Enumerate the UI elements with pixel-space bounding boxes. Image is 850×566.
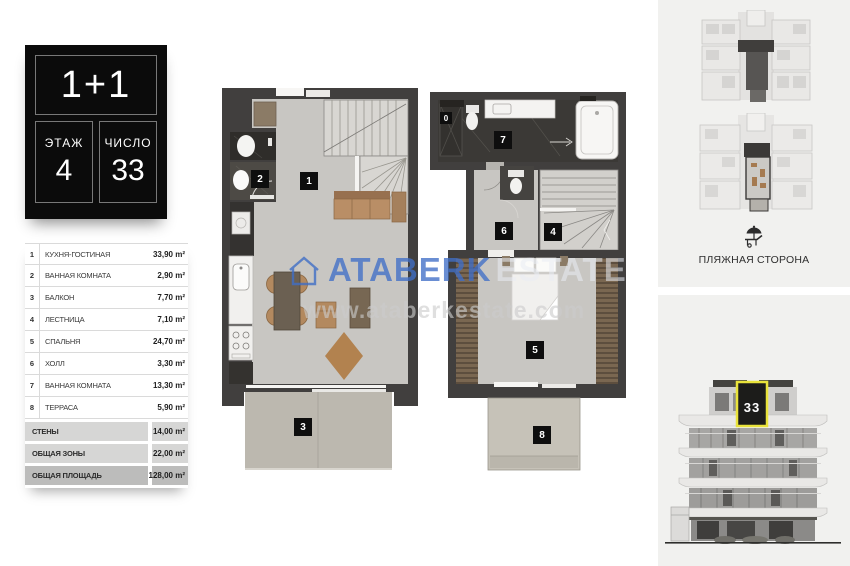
staircase-upper: [540, 170, 618, 250]
closet: [254, 102, 276, 126]
side-table: [316, 302, 336, 328]
summary-row: ОБЩАЯ ПЛОЩАДЬ128,00 m²: [25, 466, 188, 485]
toilet: [233, 170, 249, 190]
room-number: 7: [25, 375, 40, 396]
area-row: 2ВАННАЯ КОМНАТА2,90 m²: [25, 265, 188, 287]
room-number: 6: [25, 353, 40, 374]
room-number: 1: [25, 244, 40, 264]
highlighted-unit-number: 33: [744, 400, 760, 415]
building-elevation: 33: [663, 300, 845, 562]
summary-name: ОБЩАЯ ЗОНЫ: [25, 444, 148, 463]
summary-area: 14,00 m²: [152, 422, 188, 441]
room-number: 8: [25, 397, 40, 418]
unit-number-value: 33: [111, 154, 144, 188]
area-row: 1КУХНЯ-ГОСТИНАЯ33,90 m²: [25, 243, 188, 265]
floor-label: ЭТАЖ: [45, 136, 84, 150]
area-row: 3БАЛКОН7,70 m²: [25, 287, 188, 309]
floor-plan-upper: [430, 92, 626, 478]
floor-plan-lower: [222, 88, 418, 478]
unit-number-label: ЧИСЛО: [104, 136, 151, 150]
beach-icon: [741, 224, 767, 251]
floor-value: 4: [56, 154, 73, 188]
room-name: БАЛКОН: [40, 293, 157, 302]
room-name: КУХНЯ-ГОСТИНАЯ: [40, 250, 153, 259]
elevation-floors: [679, 428, 827, 517]
room-area: 7,10 m²: [157, 315, 188, 324]
sofa: [334, 191, 406, 222]
unit-number-box: ЧИСЛО 33: [99, 121, 157, 203]
bathroom-upper: [438, 96, 618, 162]
room-name: ВАННАЯ КОМНАТА: [40, 381, 153, 390]
room-number: 5: [25, 331, 40, 352]
toilet-upper: [466, 105, 479, 113]
beach-side-label: ПЛЯЖНАЯ СТОРОНА: [658, 254, 850, 266]
room-name: ХОЛЛ: [40, 359, 157, 368]
washer: [232, 212, 250, 234]
room-area: 3,30 m²: [157, 359, 188, 368]
summary-row: ОБЩАЯ ЗОНЫ22,00 m²: [25, 444, 188, 463]
area-row: 5СПАЛЬНЯ24,70 m²: [25, 331, 188, 353]
building-elevation-panel: 33: [658, 295, 850, 566]
area-table: 1КУХНЯ-ГОСТИНАЯ33,90 m²2ВАННАЯ КОМНАТА2,…: [25, 243, 188, 488]
building-plan-overview-upper: [700, 10, 812, 104]
summary-name: ОБЩАЯ ПЛОЩАДЬ: [25, 466, 148, 485]
balcony: [222, 392, 418, 470]
room-name: СПАЛЬНЯ: [40, 337, 153, 346]
area-table-summary: СТЕНЫ14,00 m²ОБЩАЯ ЗОНЫ22,00 m²ОБЩАЯ ПЛО…: [25, 422, 188, 485]
room-area: 2,90 m²: [157, 271, 188, 280]
brochure-page: 1+1 ЭТАЖ 4 ЧИСЛО 33 1КУХНЯ-ГОСТИНАЯ33,90…: [0, 0, 850, 566]
vanity-counter: [485, 100, 555, 118]
room-name: ВАННАЯ КОМНАТА: [40, 271, 157, 280]
area-row: 7ВАННАЯ КОМНАТА13,30 m²: [25, 375, 188, 397]
area-row: 6ХОЛЛ3,30 m²: [25, 353, 188, 375]
sink: [237, 135, 255, 157]
bathtub: [576, 101, 618, 159]
room-area: 5,90 m²: [157, 403, 188, 412]
unit-info-card: 1+1 ЭТАЖ 4 ЧИСЛО 33: [25, 45, 167, 219]
side-balcony-right: [596, 258, 618, 384]
room-area: 33,90 m²: [153, 250, 188, 259]
room-area: 24,70 m²: [153, 337, 188, 346]
room-number: 4: [25, 309, 40, 330]
summary-area: 128,00 m²: [152, 466, 188, 485]
tv-console: [350, 288, 370, 328]
stove: [229, 326, 253, 360]
area-row: 8ТЕРРАСА5,90 m²: [25, 397, 188, 419]
floor-box: ЭТАЖ 4: [35, 121, 93, 203]
side-balcony-left: [456, 258, 478, 384]
room-name: ТЕРРАСА: [40, 403, 157, 412]
room-name: ЛЕСТНИЦА: [40, 315, 157, 324]
kitchen: [229, 256, 253, 384]
room-number: 2: [25, 265, 40, 286]
unit-type: 1+1: [35, 55, 157, 115]
area-table-rows: 1КУХНЯ-ГОСТИНАЯ33,90 m²2ВАННАЯ КОМНАТА2,…: [25, 243, 188, 419]
terrace: [488, 398, 580, 470]
room-number: 3: [25, 287, 40, 308]
summary-name: СТЕНЫ: [25, 422, 148, 441]
summary-area: 22,00 m²: [152, 444, 188, 463]
building-plan-overview-lower: [698, 113, 814, 215]
site-overview-panel: ПЛЯЖНАЯ СТОРОНА: [658, 0, 850, 287]
room-area: 13,30 m²: [153, 381, 188, 390]
summary-row: СТЕНЫ14,00 m²: [25, 422, 188, 441]
area-row: 4ЛЕСТНИЦА7,10 m²: [25, 309, 188, 331]
room-area: 7,70 m²: [157, 293, 188, 302]
